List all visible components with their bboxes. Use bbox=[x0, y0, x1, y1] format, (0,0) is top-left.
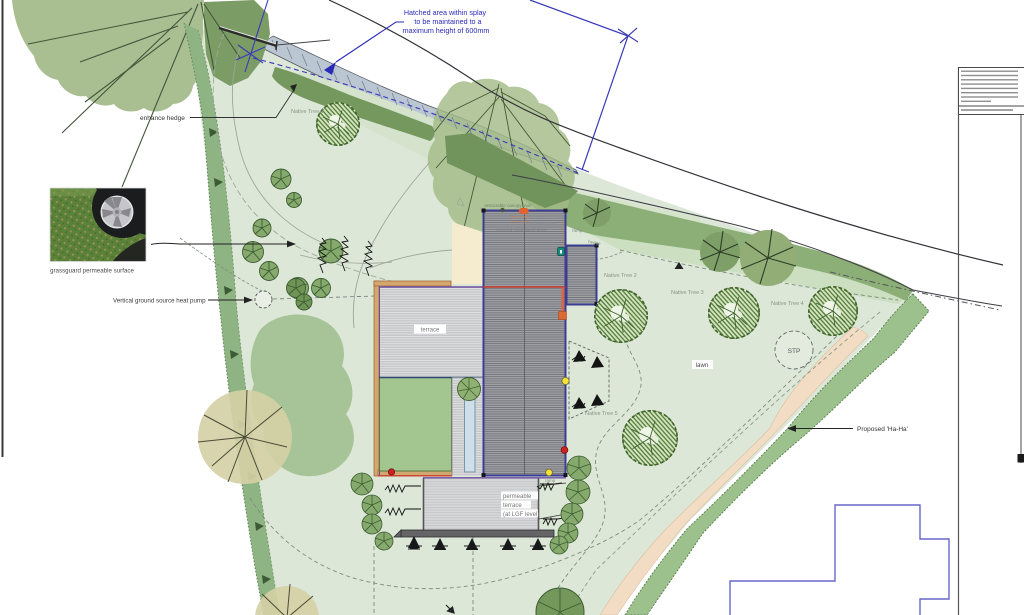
svg-text:terrace: terrace bbox=[421, 328, 440, 334]
svg-text:to be maintained to a: to be maintained to a bbox=[414, 17, 481, 26]
svg-text:ramp: ramp bbox=[545, 478, 556, 483]
svg-text:grassguard permeable surface: grassguard permeable surface bbox=[50, 268, 134, 275]
svg-text:Hatched area within splay: Hatched area within splay bbox=[404, 8, 487, 17]
svg-text:permeable: permeable bbox=[503, 494, 532, 500]
svg-text:enhance hedge: enhance hedge bbox=[140, 115, 185, 122]
svg-text:terrace: terrace bbox=[503, 503, 522, 509]
svg-text:(at LGF level): (at LGF level) bbox=[503, 512, 539, 518]
svg-text:Native Tree 4: Native Tree 4 bbox=[771, 301, 804, 307]
svg-text:Native Tree 3: Native Tree 3 bbox=[671, 290, 704, 296]
svg-text:Native Tree 1: Native Tree 1 bbox=[291, 109, 324, 115]
svg-text:maximum height of 600mm: maximum height of 600mm bbox=[403, 26, 490, 35]
svg-text:Native Tree 5: Native Tree 5 bbox=[585, 411, 618, 417]
svg-text:Vertical ground source heat pu: Vertical ground source heat pump bbox=[113, 298, 206, 305]
svg-text:ramp: ramp bbox=[572, 228, 583, 233]
svg-text:Proposed 'Ha-Ha': Proposed 'Ha-Ha' bbox=[857, 426, 908, 433]
svg-text:retractable canopy over: retractable canopy over bbox=[484, 203, 532, 208]
svg-text:lawn: lawn bbox=[696, 363, 708, 369]
svg-text:Native Tree 2: Native Tree 2 bbox=[604, 273, 637, 279]
svg-text:vertical sliding roof: vertical sliding roof bbox=[521, 220, 555, 225]
svg-text:STP: STP bbox=[788, 348, 801, 355]
svg-text:covered solar panel area: covered solar panel area bbox=[496, 227, 546, 232]
